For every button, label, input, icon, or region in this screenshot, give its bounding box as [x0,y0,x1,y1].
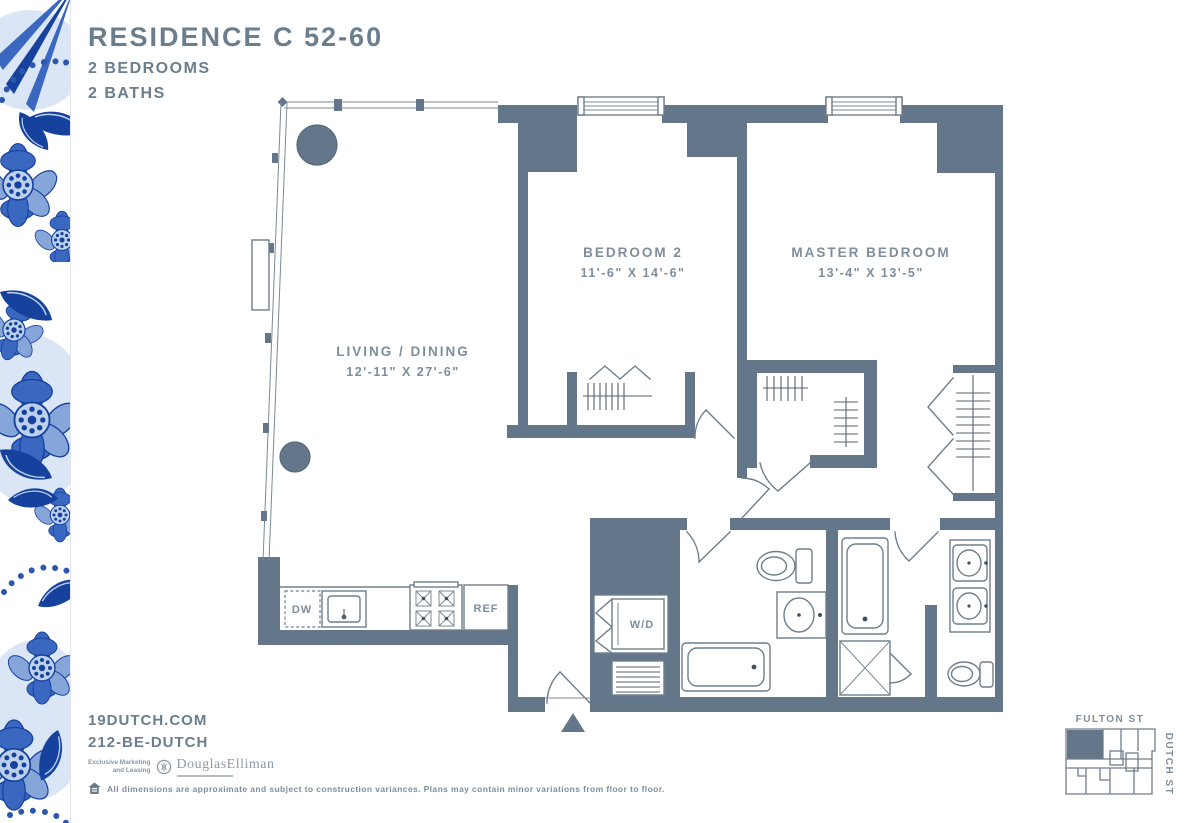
master-toilet [948,662,993,687]
website: 19DUTCH.COM [88,712,275,729]
bathroom2 [682,532,826,691]
refrigerator-label: REF [474,603,499,615]
round-column [297,125,337,165]
room-labels: LIVING / DINING 12'-11" X 27'-6" BEDROOM… [336,245,950,379]
master-bath-door [895,532,938,561]
room-label-bedroom2: BEDROOM 2 [583,245,683,260]
douglas-elliman-logo-icon [156,759,172,775]
bedroom2-window [578,97,664,115]
street-label-right: DUTCH ST [1163,733,1174,796]
equal-housing-icon [88,782,101,795]
floorplan-sheet: RESIDENCE C 52-60 2 BEDROOMS 2 BATHS [0,0,1200,823]
phone-number: 212-BE-DUTCH [88,734,275,751]
master-bathroom [840,532,993,695]
room-label-living: LIVING / DINING [336,344,470,359]
disclaimer-text: All dimensions are approximate and subje… [107,784,665,794]
entry-door [545,672,590,703]
range-stove [410,582,462,630]
room-dims-master: 13'-4" X 13'-5" [818,266,924,280]
washer-dryer-label: W/D [630,619,654,631]
key-plan: FULTON ST DUTCH ST [1058,706,1183,811]
entry-marker-triangle [561,713,585,732]
disclaimer-row: All dimensions are approximate and subje… [88,782,665,795]
bathroom2-door [687,532,730,562]
subtitle-bedrooms: 2 BEDROOMS [88,60,383,78]
room-dims-bedroom2: 11'-6" X 14'-6" [581,266,686,280]
round-column [280,442,310,472]
marketing-credit: Exclusive Marketing and Leasing [88,759,151,775]
walk-in-closet [760,376,858,491]
window-enclosure [252,240,269,310]
brand-tagline [177,775,233,777]
vanity-sink [777,592,826,638]
room-dims-living: 12'-11" X 27'-6" [346,365,459,379]
brand-wordmark: DouglasElliman [177,757,275,773]
bedroom2-door [695,410,734,438]
bathtub [682,643,770,691]
master-bedroom-door [742,478,769,518]
master-window [826,97,902,115]
floor-plan: DW REF W/D [250,85,1020,745]
bedroom2-closet [583,366,652,410]
laundry-closet: W/D [594,595,668,653]
dishwasher-label: DW [292,604,312,616]
kitchen: DW REF [280,582,508,630]
kitchen-sink [322,591,366,627]
master-bathtub [842,538,888,634]
master-closet [928,375,990,494]
page-title: RESIDENCE C 52-60 [88,22,383,53]
building-outline [1066,729,1155,794]
double-vanity [950,540,990,632]
delft-tile-art [0,0,71,823]
shower [840,641,911,695]
linen-closet [612,661,664,695]
brand-row: Exclusive Marketing and Leasing DouglasE… [88,757,275,777]
toilet [757,549,812,583]
unit-highlight [1067,730,1103,759]
footer: 19DUTCH.COM 212-BE-DUTCH Exclusive Marke… [88,712,275,777]
street-label-top: FULTON ST [1076,714,1145,725]
room-label-master: MASTER BEDROOM [791,245,950,260]
